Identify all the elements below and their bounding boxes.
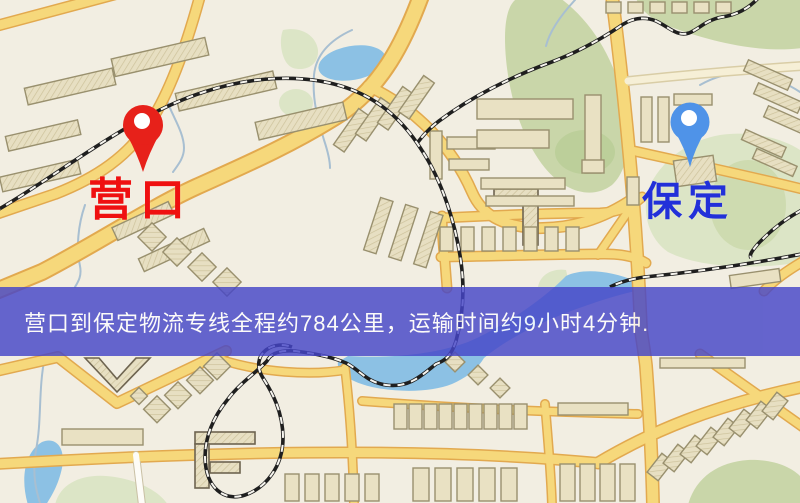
yingkou-label: 营口 bbox=[88, 177, 192, 222]
route-info-text: 营口到保定物流专线全程约784公里，运输时间约9小时4分钟. bbox=[0, 306, 649, 338]
map-canvas[interactable] bbox=[0, 0, 800, 503]
baoding-label: 保定 bbox=[642, 182, 734, 222]
map-screenshot: 营口 保定 营口到保定物流专线全程约784公里，运输时间约9小时4分钟. bbox=[0, 0, 800, 503]
route-info-banner: 营口到保定物流专线全程约784公里，运输时间约9小时4分钟. bbox=[0, 287, 800, 356]
